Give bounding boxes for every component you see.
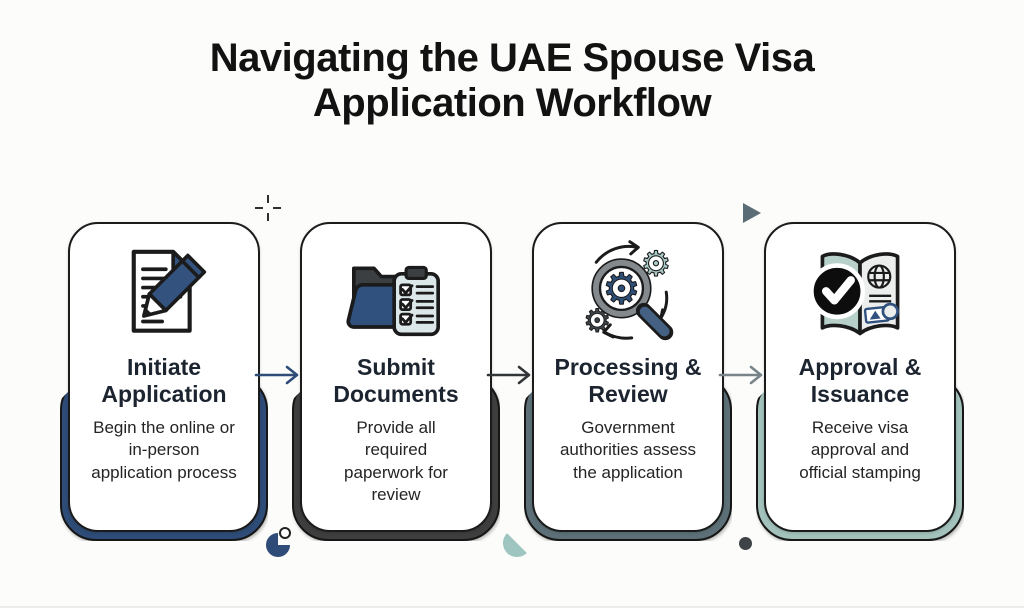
passport-check-icon bbox=[803, 236, 917, 352]
arrow-step3-to-step4-icon bbox=[718, 364, 770, 386]
step-title: Processing & Review bbox=[552, 354, 704, 407]
step-title: Initiate Application bbox=[88, 354, 240, 407]
card-face: Initiate Application Begin the online or… bbox=[68, 222, 260, 532]
step-title: Approval & Issuance bbox=[784, 354, 936, 407]
step-title: Submit Documents bbox=[320, 354, 472, 407]
step-card-initiate-application: Initiate Application Begin the online or… bbox=[68, 222, 260, 532]
step-description: Receive visa approval and official stamp… bbox=[787, 417, 933, 483]
step-description: Provide all required paperwork for revie… bbox=[323, 417, 469, 505]
document-pen-icon bbox=[107, 236, 221, 352]
step-card-processing-review: ⚙ ⚙ ⚙ Processing & Review Government aut… bbox=[532, 222, 724, 532]
workflow-steps: Initiate Application Begin the online or… bbox=[68, 222, 956, 542]
svg-text:⚙: ⚙ bbox=[602, 264, 640, 314]
step-card-submit-documents: Submit Documents Provide all required pa… bbox=[300, 222, 492, 532]
card-face: Submit Documents Provide all required pa… bbox=[300, 222, 492, 532]
card-face: ⚙ ⚙ ⚙ Processing & Review Government aut… bbox=[532, 222, 724, 532]
step-description: Begin the online or in-person applicatio… bbox=[91, 417, 237, 483]
page-title: Navigating the UAE Spouse Visa Applicati… bbox=[162, 36, 862, 126]
step-description: Government authorities assess the applic… bbox=[555, 417, 701, 483]
card-face: Approval & Issuance Receive visa approva… bbox=[764, 222, 956, 532]
step-card-approval-issuance: Approval & Issuance Receive visa approva… bbox=[764, 222, 956, 532]
arrow-step2-to-step3-icon bbox=[486, 364, 538, 386]
magnifier-gears-icon: ⚙ ⚙ ⚙ bbox=[571, 236, 685, 352]
folder-clipboard-icon bbox=[339, 236, 453, 352]
crosshair-icon bbox=[254, 194, 282, 222]
infographic-root: { "title": "Navigating the UAE Spouse Vi… bbox=[0, 36, 1024, 608]
arrow-step1-to-step2-icon bbox=[254, 364, 306, 386]
